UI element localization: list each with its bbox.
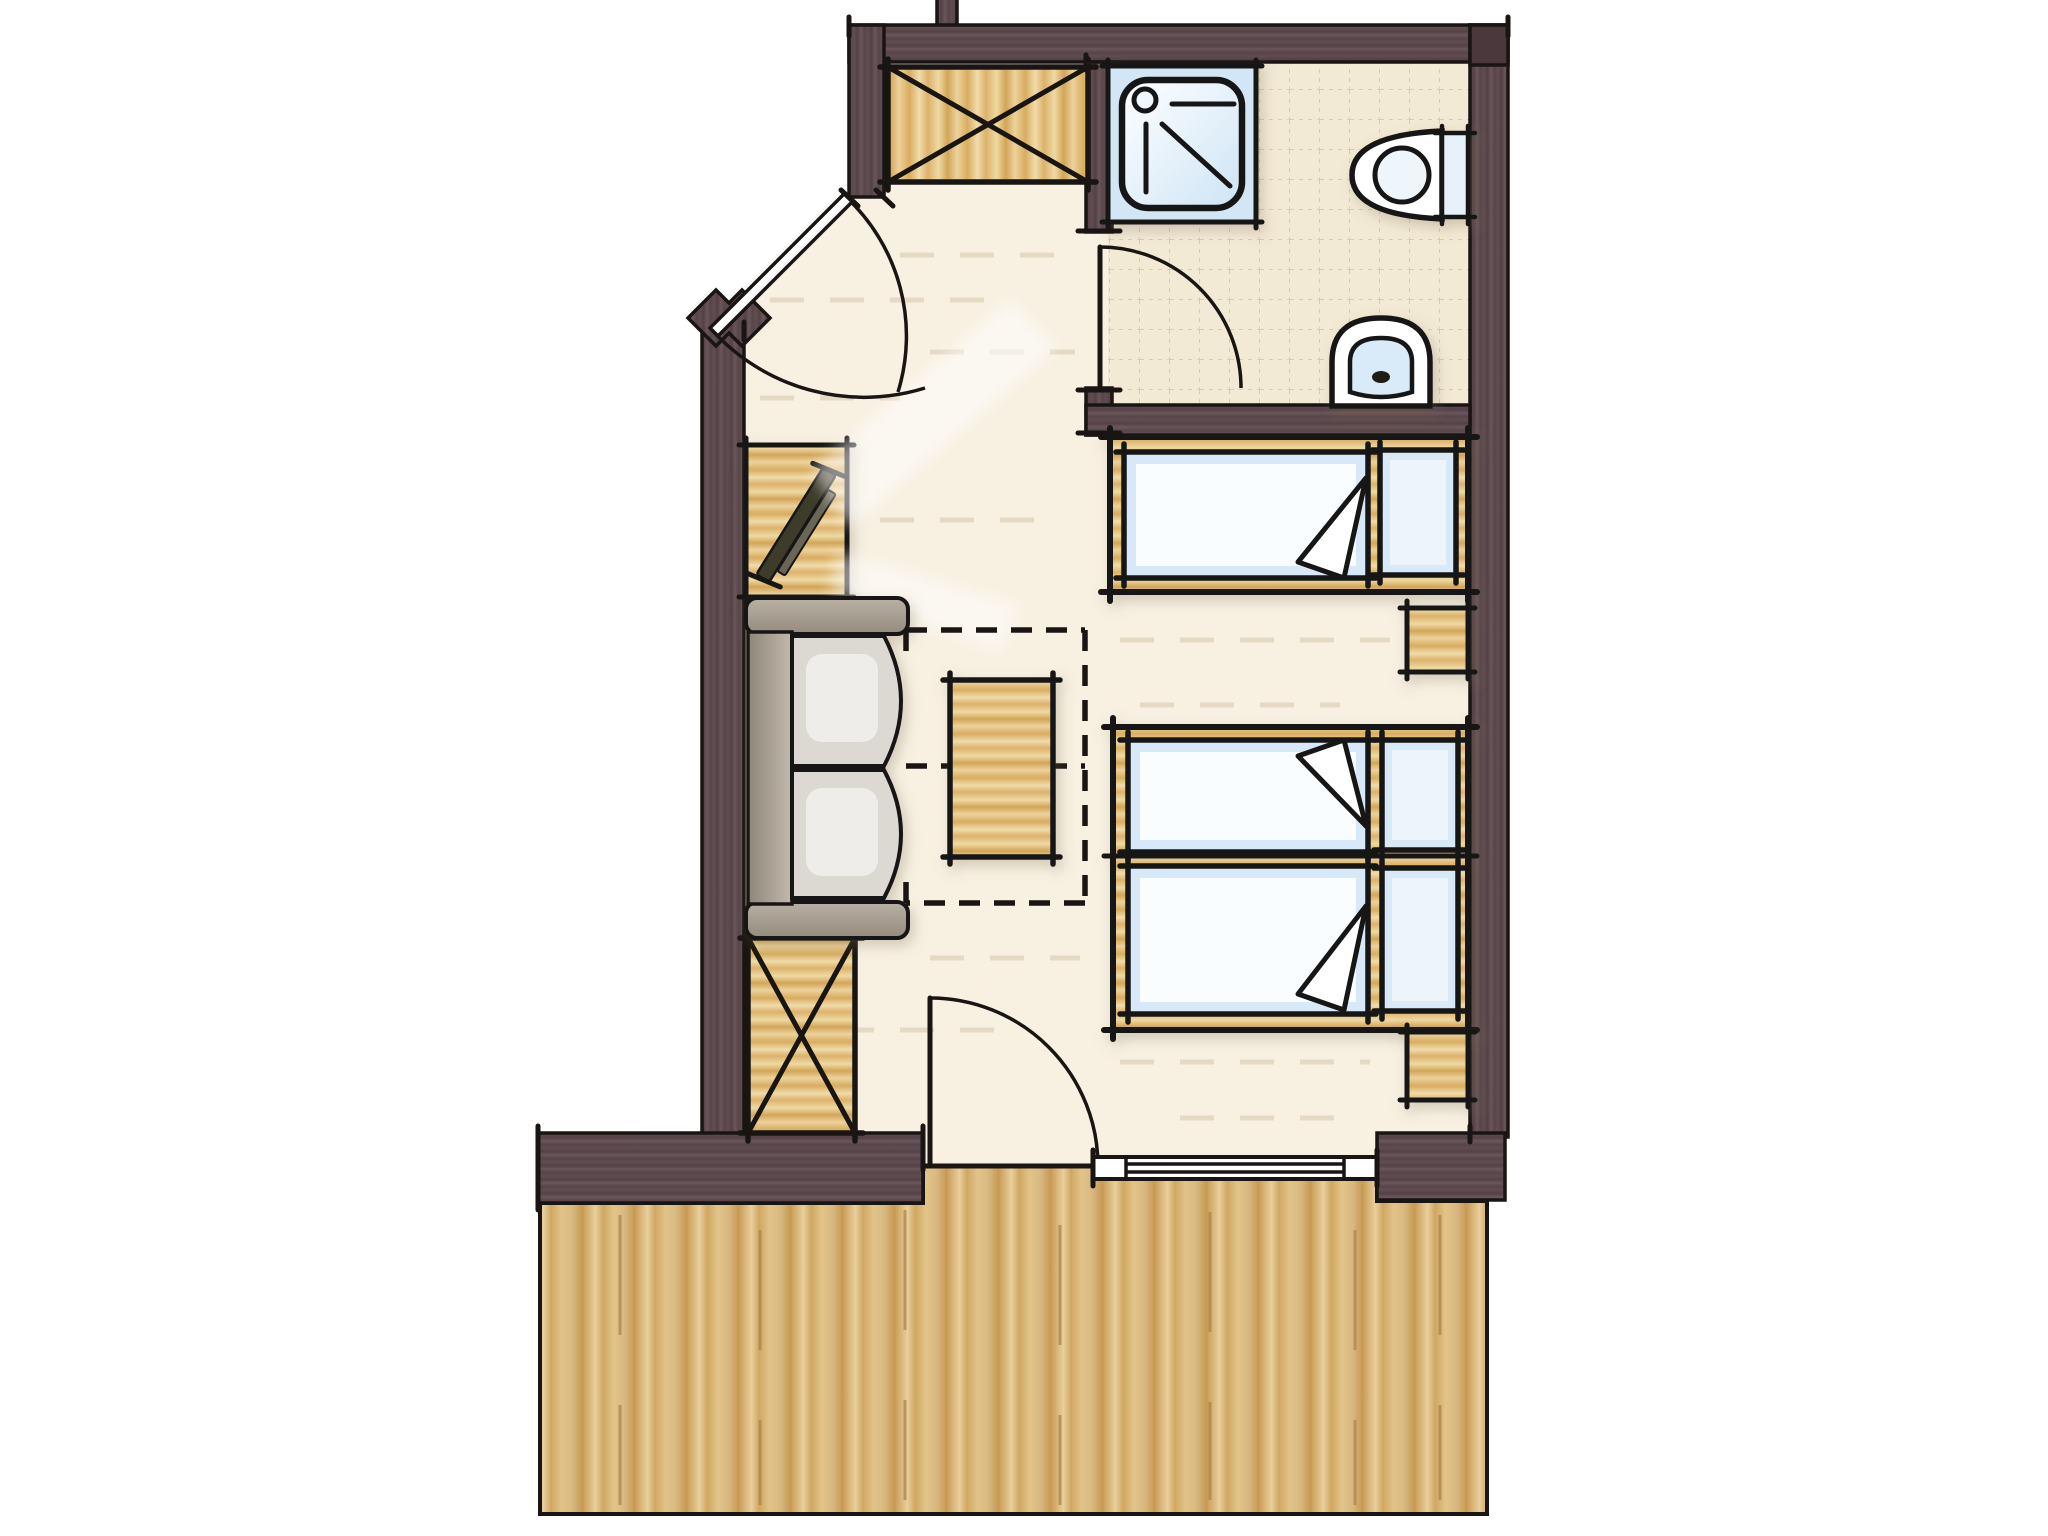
toilet-cistern — [1435, 126, 1475, 224]
wardrobe-living — [740, 930, 863, 1141]
shower — [1102, 60, 1262, 228]
sofa — [746, 598, 908, 938]
sliding-window — [1093, 1150, 1377, 1186]
floor-plan-figure: Hand-drawn hotel room floor plan with ba… — [0, 0, 2048, 1536]
single-bed — [1101, 428, 1477, 601]
double-bed — [1104, 718, 1477, 1039]
double-bed-pillow-2 — [1374, 860, 1466, 1019]
single-bed-pillow — [1372, 442, 1464, 583]
double-bed-pillow-1 — [1374, 732, 1466, 858]
wall-bottom-right-band — [1377, 1133, 1505, 1200]
sofa-armrest-top — [746, 598, 908, 634]
wall-right — [1470, 25, 1508, 1137]
nightstand-1 — [1400, 601, 1475, 679]
wall-bottom-left-band — [538, 1133, 923, 1203]
sofa-armrest-bottom — [746, 902, 908, 938]
terrace-deck — [540, 1166, 1487, 1514]
wall-corner-top-right — [1470, 25, 1508, 65]
sofa-backrest — [748, 632, 792, 904]
bidet — [1332, 318, 1430, 406]
shower-head-icon — [1134, 89, 1156, 111]
wardrobe-entry — [880, 59, 1096, 190]
wall-top-stub — [937, 0, 957, 27]
wall-left — [702, 330, 744, 1135]
coffee-table — [943, 673, 1060, 864]
wall-top — [849, 25, 1508, 62]
wall-bath-bottom — [1086, 405, 1470, 435]
wall-entry-column — [849, 25, 884, 197]
nightstand-2 — [1400, 1025, 1475, 1107]
floor-plan-svg: Hand-drawn hotel room floor plan with ba… — [0, 0, 2048, 1536]
